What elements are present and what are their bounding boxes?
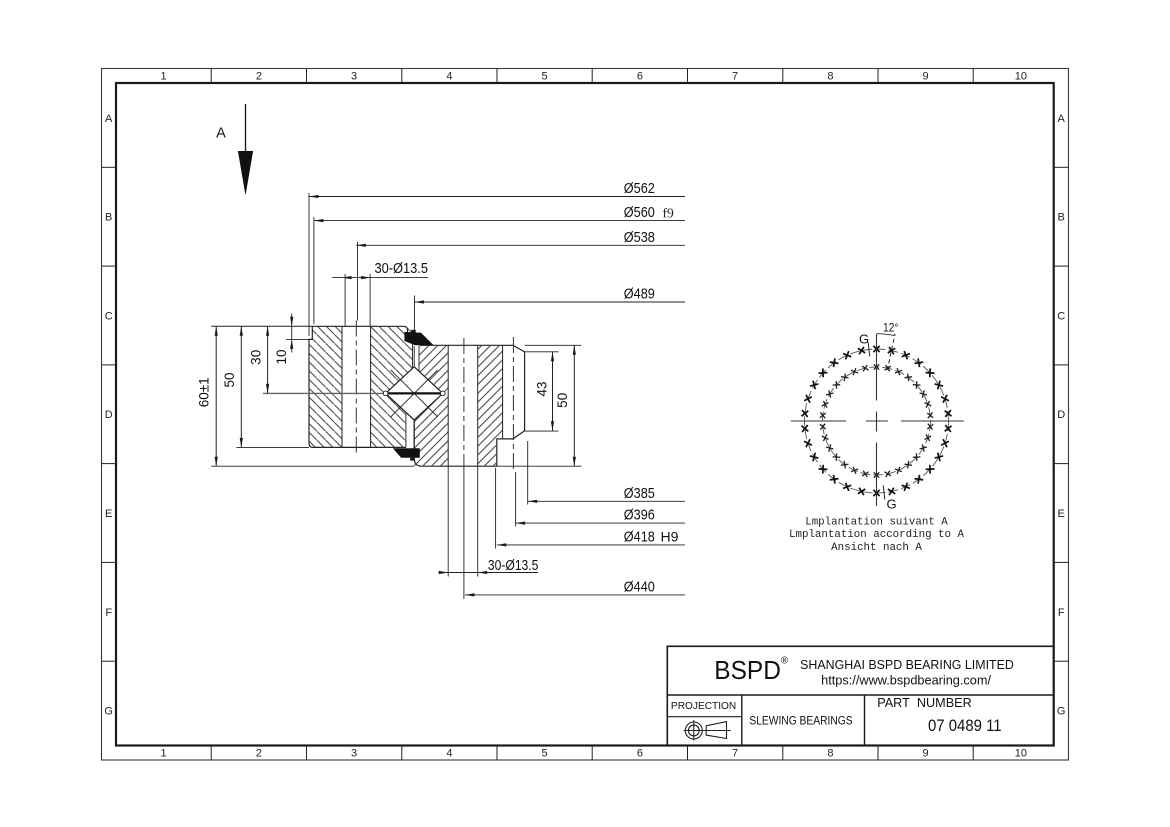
svg-text:1: 1 bbox=[161, 71, 167, 83]
svg-text:SLEWING BEARINGS: SLEWING BEARINGS bbox=[749, 716, 853, 728]
svg-text:Lmplantation according to A: Lmplantation according to A bbox=[789, 529, 964, 541]
svg-text:2: 2 bbox=[256, 71, 262, 83]
svg-text:B: B bbox=[105, 212, 112, 224]
svg-text:A: A bbox=[105, 113, 113, 125]
svg-text:Ø418: Ø418 bbox=[624, 528, 655, 545]
svg-text:Ø538: Ø538 bbox=[624, 229, 655, 246]
svg-text:4: 4 bbox=[446, 71, 452, 83]
svg-text:F: F bbox=[105, 607, 112, 619]
svg-text:G: G bbox=[886, 497, 896, 512]
svg-text:D: D bbox=[105, 409, 113, 421]
svg-text:43: 43 bbox=[535, 381, 550, 396]
svg-text:®: ® bbox=[781, 656, 789, 667]
svg-text:G: G bbox=[104, 706, 113, 718]
svg-text:5: 5 bbox=[542, 748, 548, 760]
svg-text:BSPD: BSPD bbox=[714, 657, 781, 685]
svg-text:C: C bbox=[105, 311, 113, 323]
svg-text:C: C bbox=[1057, 311, 1065, 323]
svg-text:Ø440: Ø440 bbox=[624, 578, 655, 595]
svg-text:PART NUMBER: PART NUMBER bbox=[877, 695, 972, 710]
svg-text:07 0489 11: 07 0489 11 bbox=[928, 717, 1002, 735]
svg-text:3: 3 bbox=[351, 71, 357, 83]
svg-text:50: 50 bbox=[222, 372, 237, 387]
svg-text:7: 7 bbox=[732, 748, 738, 760]
svg-text:7: 7 bbox=[732, 71, 738, 83]
svg-text:30-Ø13.5: 30-Ø13.5 bbox=[488, 558, 539, 574]
svg-text:SHANGHAI BSPD BEARING LIMITED: SHANGHAI BSPD BEARING LIMITED bbox=[800, 657, 1014, 672]
svg-text:PROJECTION: PROJECTION bbox=[671, 701, 736, 712]
svg-text:D: D bbox=[1057, 409, 1065, 421]
svg-text:6: 6 bbox=[637, 71, 643, 83]
svg-text:6: 6 bbox=[637, 748, 643, 760]
svg-text:10: 10 bbox=[274, 349, 289, 364]
svg-text:3: 3 bbox=[351, 748, 357, 760]
svg-text:1: 1 bbox=[161, 748, 167, 760]
svg-text:F: F bbox=[1058, 607, 1065, 619]
svg-text:30: 30 bbox=[249, 350, 264, 365]
svg-text:A: A bbox=[216, 126, 226, 142]
svg-text:60±1: 60±1 bbox=[197, 377, 212, 407]
svg-text:B: B bbox=[1058, 212, 1065, 224]
svg-text:https://www.bspdbearing.com/: https://www.bspdbearing.com/ bbox=[821, 672, 991, 687]
svg-text:10: 10 bbox=[1015, 71, 1027, 83]
svg-text:Ansicht nach A: Ansicht nach A bbox=[831, 542, 922, 554]
svg-text:50: 50 bbox=[555, 393, 570, 408]
svg-text:2: 2 bbox=[256, 748, 262, 760]
svg-text:8: 8 bbox=[827, 748, 833, 760]
svg-text:H9: H9 bbox=[661, 528, 679, 544]
svg-text:Ø489: Ø489 bbox=[624, 286, 655, 303]
svg-text:Ø385: Ø385 bbox=[624, 485, 655, 502]
svg-text:Ø562: Ø562 bbox=[624, 180, 655, 197]
svg-text:5: 5 bbox=[542, 71, 548, 83]
svg-text:10: 10 bbox=[1015, 748, 1027, 760]
svg-text:f9: f9 bbox=[663, 206, 674, 221]
svg-text:8: 8 bbox=[827, 71, 833, 83]
svg-text:Ø396: Ø396 bbox=[624, 507, 655, 524]
svg-text:Lmplantation suivant A: Lmplantation suivant A bbox=[805, 517, 948, 529]
svg-text:9: 9 bbox=[923, 748, 929, 760]
svg-text:9: 9 bbox=[923, 71, 929, 83]
svg-text:Ø560: Ø560 bbox=[624, 204, 655, 221]
svg-text:30-Ø13.5: 30-Ø13.5 bbox=[375, 261, 429, 277]
svg-text:4: 4 bbox=[446, 748, 452, 760]
svg-text:G: G bbox=[1057, 706, 1066, 718]
svg-text:A: A bbox=[1058, 113, 1066, 125]
svg-text:G: G bbox=[859, 332, 869, 347]
svg-text:E: E bbox=[1058, 508, 1065, 520]
svg-text:12°: 12° bbox=[883, 321, 899, 335]
svg-text:E: E bbox=[105, 508, 112, 520]
